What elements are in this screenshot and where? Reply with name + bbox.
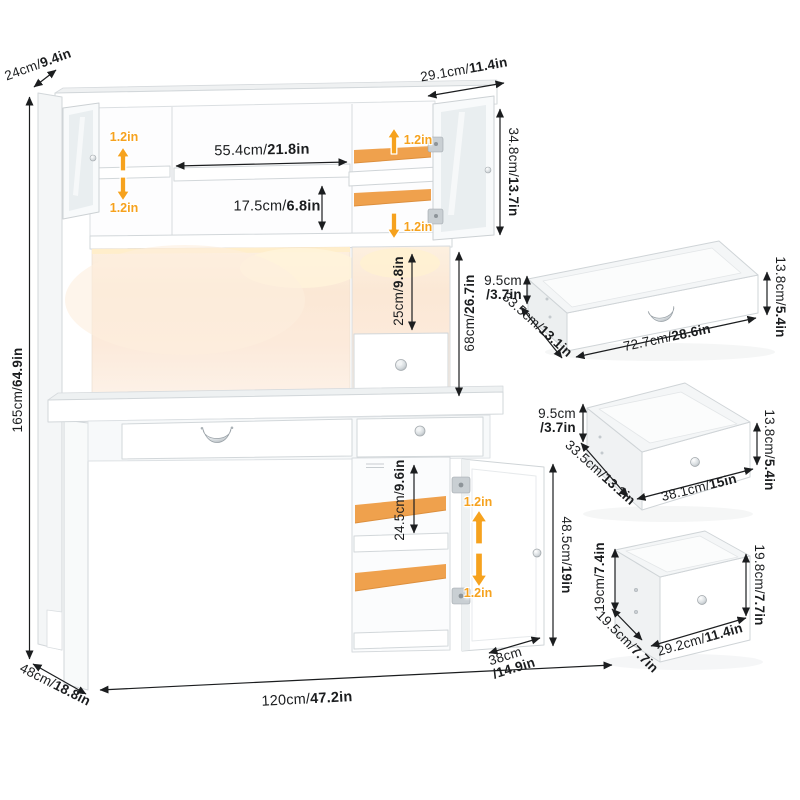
door-knob xyxy=(485,167,491,173)
shelf-adjust-label: 1.2in xyxy=(110,130,139,144)
shelf-adjust-label: 1.2in xyxy=(464,586,493,600)
dim-d3-front-height-label: 19cm/7.4in xyxy=(593,542,607,612)
front-left-leg xyxy=(64,420,88,690)
desk-drawer-right xyxy=(357,417,483,457)
shelf-adjust-label: 1.2in xyxy=(464,495,493,509)
dim-shelf-width-label: 55.4cm/21.8in xyxy=(214,143,310,160)
left-side-panel xyxy=(38,93,62,650)
dim-upper-cabinet-height-label: 34.8cm/13.7in xyxy=(506,128,520,217)
dim-cubby-height-label: 25cm/9.8in xyxy=(392,256,406,326)
dim-shelf-spacing-label: 17.5cm/6.8in xyxy=(233,199,320,214)
door-knob xyxy=(533,549,541,557)
dim-hutch-height-label: 68cm/26.7in xyxy=(463,274,477,351)
dim-d2-front-height-label: 9.5cm/3.7in xyxy=(538,407,576,435)
desk-drawer-left xyxy=(122,419,352,459)
drawer-knob xyxy=(415,426,425,436)
panel-foot-notch xyxy=(47,610,62,650)
drawer-knob xyxy=(691,458,700,467)
dim-d2-side-height-label: 13.8cm/5.4in xyxy=(762,409,776,490)
cabinet-bottom-board xyxy=(354,630,448,649)
dim-total-height-label: 165cm/64.9in xyxy=(11,348,25,433)
drawer-shadow xyxy=(583,506,753,522)
shelf-adjust-label: 1.2in xyxy=(404,220,433,234)
shelf-adjust-label: 1.2in xyxy=(110,201,139,215)
led-glow-soft xyxy=(65,245,305,355)
dim-cabinet-shelf-height-label: 24.5cm/9.6in xyxy=(393,459,407,540)
left-cabinet-shelf xyxy=(92,166,170,179)
shelf-adjust-label: 1.2in xyxy=(404,133,433,147)
upper-left-glass-door xyxy=(63,103,99,219)
knob-highlight xyxy=(398,362,402,366)
furniture-artwork xyxy=(0,0,800,800)
dim-d3-side-height-label: 19.8cm/7.7in xyxy=(752,544,766,625)
drawer-knob xyxy=(698,596,707,605)
upper-right-glass-door xyxy=(428,96,494,240)
product-dimension-diagram: 24cm/9.4in 165cm/64.9in 29.1cm/11.4in 34… xyxy=(0,0,800,800)
dim-d1-side-height-label: 13.8cm/5.4in xyxy=(773,256,787,337)
dim-cabinet-height-label: 48.5cm/19in xyxy=(559,516,573,593)
door-knob xyxy=(90,155,96,161)
lower-cabinet-door xyxy=(452,459,544,651)
